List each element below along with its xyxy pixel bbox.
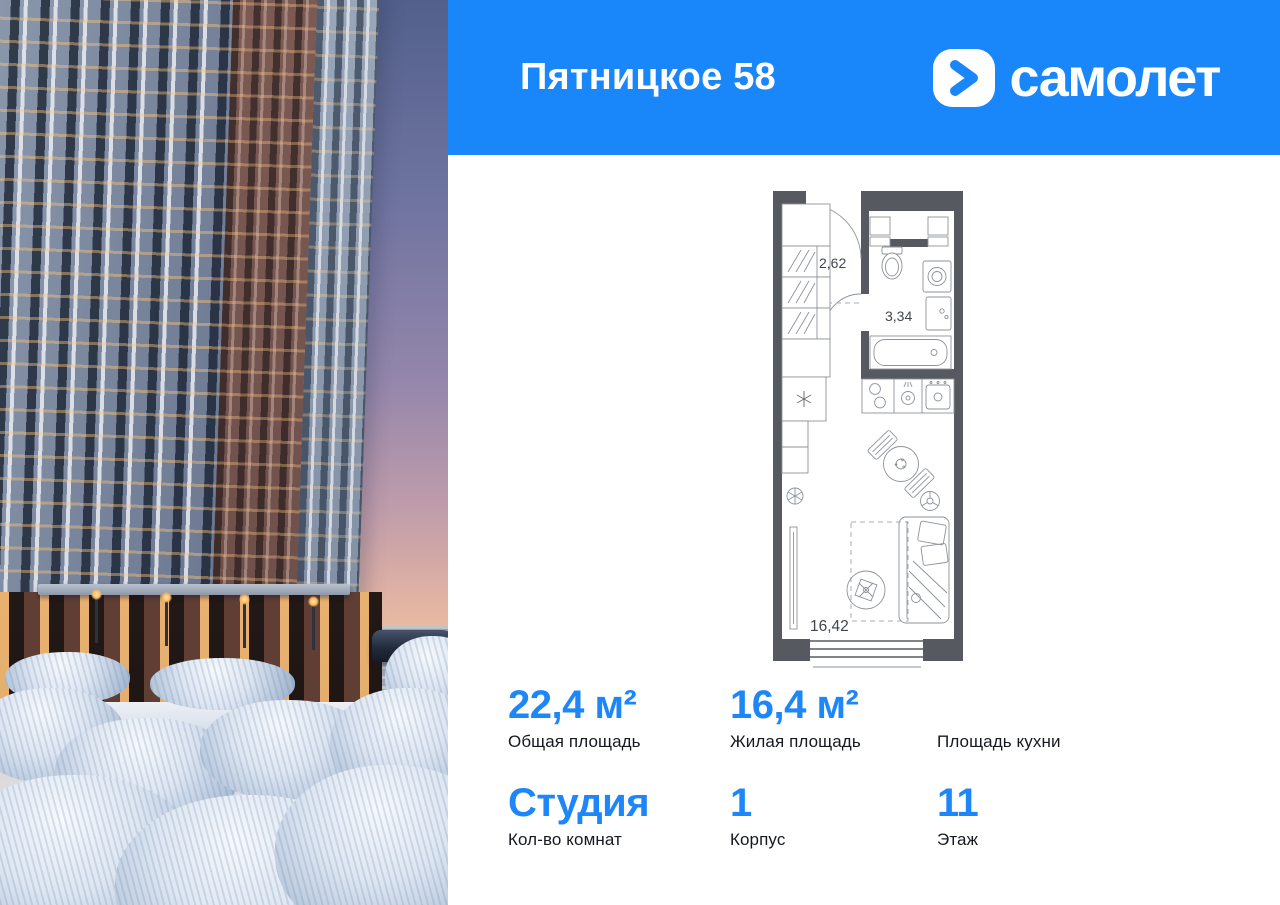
street-lamp [165,598,168,646]
info-panel: Пятницкое 58 самолет [448,0,1280,905]
stat-label: Этаж [937,830,1280,850]
utility-shaft [782,377,826,421]
kitchen-counter [862,379,954,413]
stat-label: Жилая площадь [730,732,937,752]
stat-value: Студия [508,781,730,827]
stat-value: 22,4 м² [508,683,730,729]
street-lamp [95,595,98,643]
living-area-label: 16,42 [810,618,849,635]
hall-area-label: 2,62 [819,255,846,271]
stat-label: Корпус [730,830,937,850]
living-closet [782,421,808,473]
street-lamp [312,602,315,650]
stat-total-area: 22,4 м² Общая площадь [508,683,730,752]
stat-value: 11 [937,781,1280,827]
samolet-logo: самолет [933,49,1220,107]
mirror [790,527,797,629]
bathtub-icon [870,336,951,369]
washing-machine-icon [923,261,951,292]
bathroom-area-label: 3,34 [885,308,912,324]
stat-building: 1 Корпус [730,781,937,850]
listing-card: Пятницкое 58 самолет [0,0,1280,905]
page-title: Пятницкое 58 [520,56,776,99]
samolet-logo-icon [933,49,995,107]
entrance-canopy [38,584,350,595]
stat-label: Общая площадь [508,732,730,752]
building-photo [0,0,448,905]
stat-label: Площадь кухни [937,732,1280,752]
hall-wardrobe [782,204,830,377]
stats-grid: 22,4 м² Общая площадь 16,4 м² Жилая площ… [448,671,1280,879]
stat-kitchen-area: Площадь кухни [937,683,1280,752]
street-lamp [243,600,246,648]
stat-floor: 11 Этаж [937,781,1280,850]
header: Пятницкое 58 самолет [448,0,1280,155]
stat-label: Кол-во комнат [508,830,730,850]
floor-plan: 2,62 3,34 16,42 [773,191,963,671]
stat-living-area: 16,4 м² Жилая площадь [730,683,937,752]
stat-value: 16,4 м² [730,683,937,729]
stat-rooms: Студия Кол-во комнат [508,781,730,850]
samolet-logo-text: самолет [1010,51,1220,105]
toilet-icon [882,247,902,279]
stat-value [937,683,1280,729]
bathroom-sink-icon [926,297,951,330]
stat-value: 1 [730,781,937,827]
sofa-icon [899,517,949,623]
